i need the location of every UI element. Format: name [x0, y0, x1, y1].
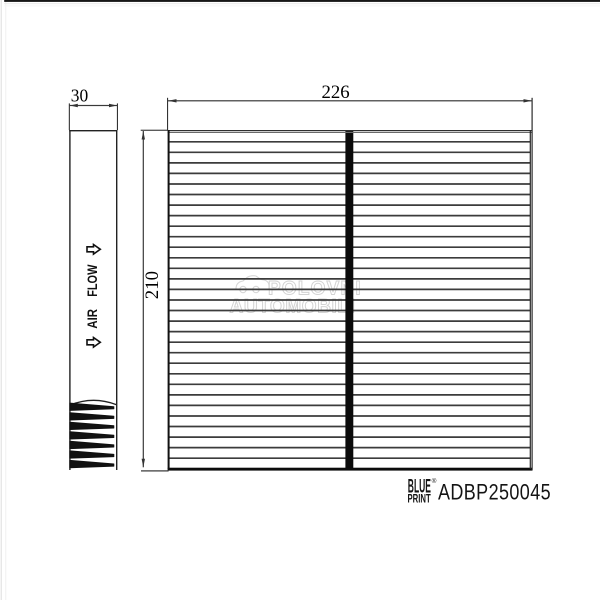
- svg-text:AIR: AIR: [84, 309, 100, 329]
- svg-text:30: 30: [71, 86, 89, 106]
- svg-text:ADBP250045: ADBP250045: [438, 481, 551, 505]
- svg-text:FLOW: FLOW: [84, 264, 100, 297]
- svg-text:210: 210: [142, 271, 163, 299]
- svg-text:®: ®: [432, 477, 437, 485]
- svg-text:226: 226: [322, 82, 350, 103]
- svg-text:PRINT: PRINT: [408, 493, 432, 506]
